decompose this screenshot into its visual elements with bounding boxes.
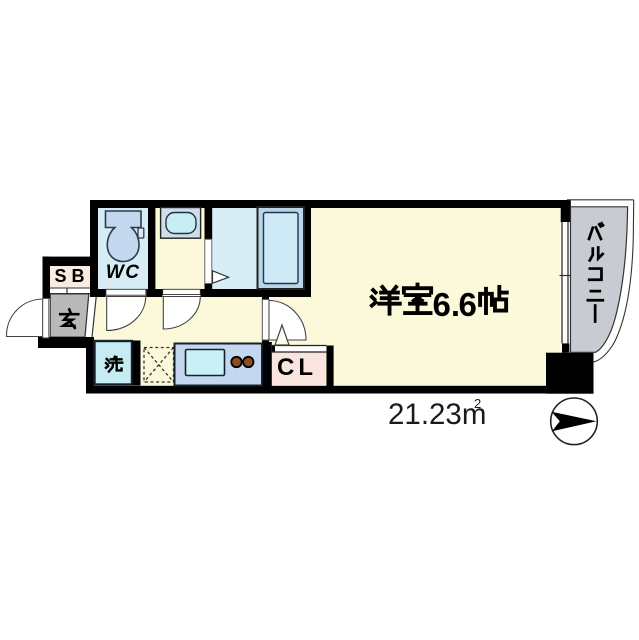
svg-text:WC: WC [106, 262, 141, 283]
svg-text:6.: 6. [433, 286, 461, 323]
svg-text:6: 6 [459, 286, 477, 323]
svg-text:2: 2 [474, 396, 481, 411]
svg-text:SB: SB [54, 266, 89, 286]
svg-text:CL: CL [277, 354, 317, 381]
svg-text:21.23m: 21.23m [388, 398, 486, 431]
